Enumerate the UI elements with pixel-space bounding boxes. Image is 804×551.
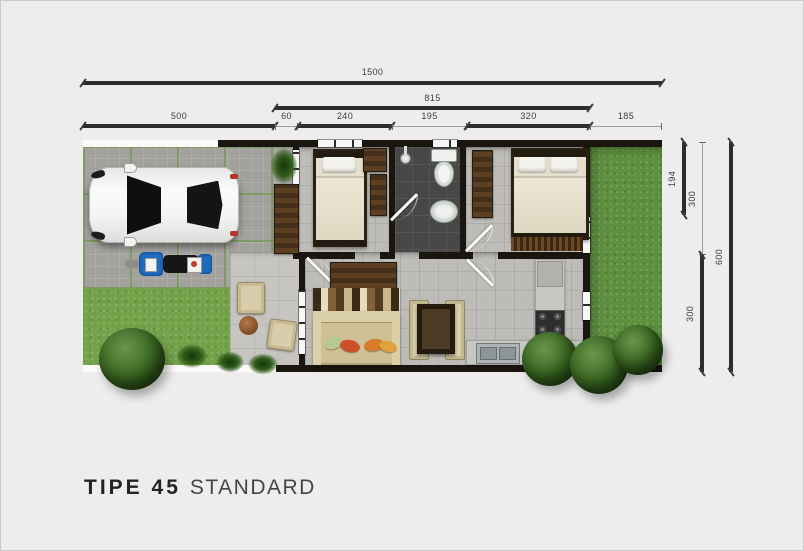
sink-basin (480, 347, 497, 360)
backyard-bush (613, 325, 663, 375)
sofa-cushion (339, 338, 361, 354)
dim-label-bedroom-depth: 194 (667, 142, 679, 215)
bedroom2-wardrobe (472, 150, 493, 218)
bedroom1-wardrobe (370, 174, 387, 216)
accent-wall (313, 288, 400, 311)
dim-tick-upper-depth (702, 142, 703, 255)
window-bedroom1-top (318, 140, 362, 147)
car (89, 167, 239, 243)
dim-label-segment: 320 (467, 111, 590, 121)
bed-footboard (314, 240, 366, 246)
single-bed (313, 149, 367, 247)
fern-plant (243, 350, 283, 378)
sink-basin (499, 347, 516, 360)
dim-label-site-depth: 600 (714, 142, 726, 372)
dim-tick-segment (392, 126, 467, 127)
bed-blanket (514, 176, 586, 237)
dim-label-segment: 500 (83, 111, 275, 121)
planter-plant (266, 142, 302, 190)
car-rear-window (187, 181, 223, 230)
planter-box (274, 184, 299, 254)
burner (539, 313, 546, 320)
window-bathroom-top (433, 140, 457, 147)
kitchen-block (537, 261, 563, 287)
sofa-armrest (313, 311, 321, 365)
sofa (313, 311, 400, 365)
site-edge-top (83, 140, 218, 147)
car-taillight (230, 231, 238, 236)
dim-bar-site-width (83, 81, 662, 85)
dim-label-segment: 240 (298, 111, 392, 121)
window-living-front (299, 290, 305, 354)
plan-title-variant: STANDARD (190, 476, 316, 499)
bed-blanket (316, 176, 364, 244)
kitchen-sink (476, 343, 520, 364)
dim-label-segment: 185 (590, 111, 662, 121)
double-bed (511, 148, 589, 240)
sofa-backrest (313, 311, 400, 323)
dim-label-site-width: 1500 (83, 67, 662, 77)
dim-label-house-width: 815 (275, 93, 590, 103)
bed-pillow (322, 157, 356, 172)
bathroom-door (391, 194, 418, 221)
table-top (422, 309, 450, 349)
motorcycle (125, 246, 213, 282)
shower-arm (404, 146, 407, 155)
plan-title-model: TIPE 45 (84, 476, 181, 499)
bedroom1-cabinet (363, 148, 387, 172)
dim-bar-segment (298, 124, 392, 128)
fern-plant (171, 340, 213, 372)
dim-bar-house-width (275, 106, 590, 110)
site-plan (83, 140, 662, 372)
car-mirror (124, 163, 137, 173)
console-table (330, 262, 397, 289)
dim-label-segment: 60 (275, 111, 298, 121)
car-taillight (230, 174, 238, 179)
bed-headboard (513, 150, 587, 157)
plan-title: TIPE 45STANDARD (84, 476, 316, 500)
motorcycle-helmet (191, 261, 197, 267)
wall-interior-segment (498, 252, 590, 259)
bedroom2-door (466, 225, 493, 252)
wall-interior-segment (419, 252, 473, 259)
front-bush (99, 328, 165, 390)
terrace-chair (266, 318, 298, 352)
kitchen-door (467, 259, 494, 286)
bathroom-sink (430, 200, 458, 223)
dim-bar-segment (83, 124, 275, 128)
dim-bar-segment (467, 124, 590, 128)
dining-table (417, 304, 455, 354)
burner (554, 313, 561, 320)
terrace-table (239, 316, 258, 335)
terrace-chair (237, 282, 265, 314)
dim-label-segment: 195 (392, 111, 467, 121)
dim-bar-lower-depth (700, 255, 704, 372)
dim-bar-bedroom-depth (682, 142, 686, 215)
dim-tick-segment (590, 126, 662, 127)
window-kitchen-right (583, 292, 590, 320)
dim-label-lower-depth: 300 (685, 255, 697, 372)
shower-head (401, 154, 410, 163)
dim-label-upper-depth: 300 (687, 142, 699, 255)
motorcycle-shield (145, 258, 157, 272)
bed-pillow (550, 157, 578, 172)
wall-interior-segment (380, 252, 395, 259)
floor-plan-page: 1500 815 500 60 240 195 320 185 194 300 … (0, 0, 804, 551)
bed-pillow (518, 157, 546, 172)
bedroom2-rug (511, 237, 583, 251)
dim-bar-site-depth (729, 142, 733, 372)
sofa-armrest (392, 311, 400, 365)
